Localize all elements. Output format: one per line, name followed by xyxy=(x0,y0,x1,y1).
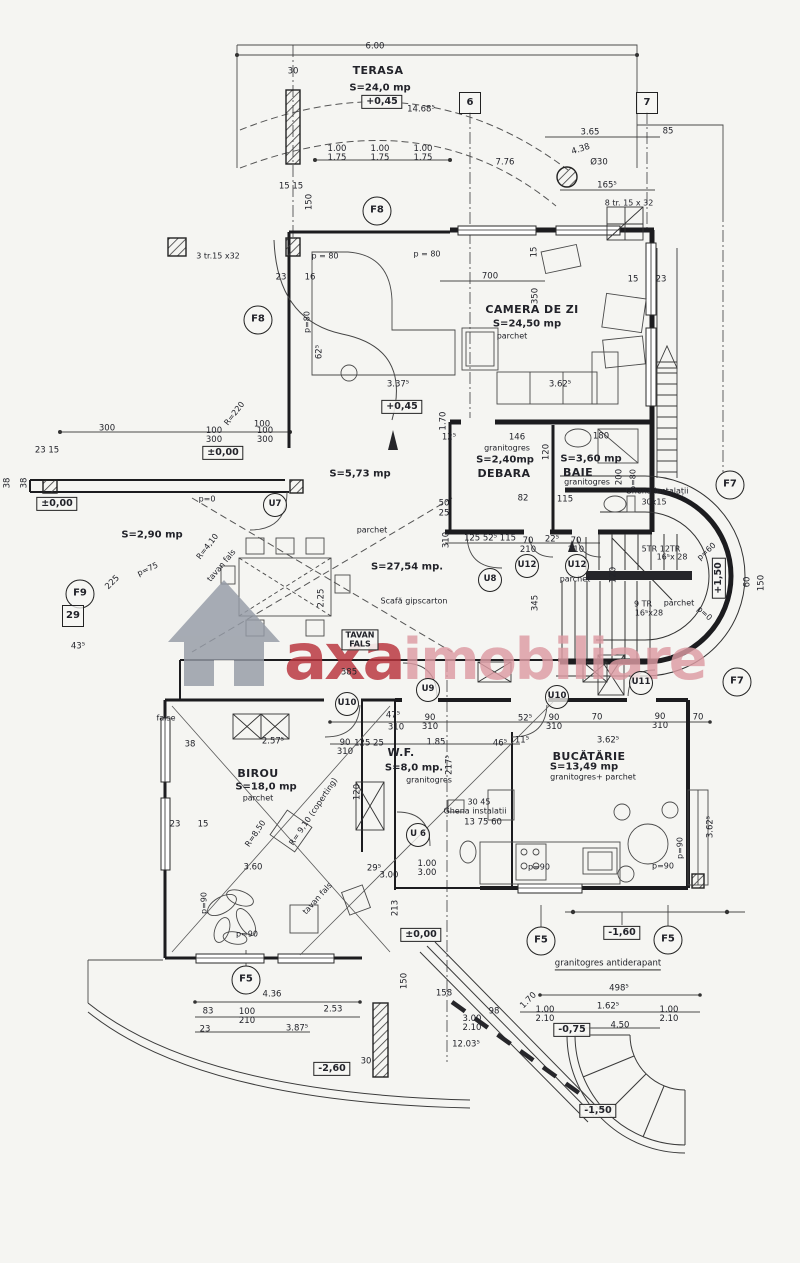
slope-label: p=80 xyxy=(304,311,313,333)
dimension-label: 23 xyxy=(656,275,667,284)
room-area-label: S=18,0 mp xyxy=(235,783,296,794)
dimension-label: 85 xyxy=(663,127,674,136)
room-area-label: S=2,90 mp xyxy=(121,531,182,542)
slope-label: p=90 xyxy=(201,892,210,914)
room-area-label: S=24,50 mp xyxy=(493,320,561,331)
dimension-label: 16 xyxy=(305,273,316,282)
slope-label: p = 80 xyxy=(311,253,338,262)
dimension-label: Ø30 xyxy=(590,158,608,167)
slope-label: p=0 xyxy=(199,496,216,505)
opening-marker: U10 xyxy=(335,692,359,716)
room-name-label: W.F. xyxy=(387,747,414,759)
room-area-label: S=2,40mp xyxy=(476,456,534,467)
dimension-label: 1.85 xyxy=(427,738,446,747)
dimension-label: 150 xyxy=(305,194,314,210)
grid-axis-tag: 6 xyxy=(459,92,481,114)
dimension-label: 2.53 xyxy=(324,1005,343,1014)
finish-label: granitogres+ parchet xyxy=(550,774,636,783)
dimension-label: 2.25 xyxy=(317,589,326,608)
opening-marker: U11 xyxy=(629,671,653,695)
dimension-label: 70 xyxy=(693,713,704,722)
dimension-label: 4.36 xyxy=(263,990,282,999)
dimension-label: 310 xyxy=(388,723,404,732)
dimension-label: 3.60 xyxy=(244,863,263,872)
dimension-label: 3.62⁵ xyxy=(549,380,571,389)
dimension-label: 15 xyxy=(628,275,639,284)
finish-label: parchet xyxy=(664,600,695,609)
dimension-label: 1.62⁵ xyxy=(597,1002,619,1011)
floor-plan-canvas: axa imobiliare TERASACAMERA DE ZIDEBARAB… xyxy=(0,0,800,1263)
finish-label: parchet xyxy=(497,333,528,342)
dimension-label: 14.68⁵ xyxy=(407,105,435,114)
dimension-label: 90 310 xyxy=(422,714,438,732)
annotation-label: 8 tr. 15 x 32 xyxy=(605,200,654,209)
finish-label: parchet xyxy=(357,527,388,536)
level-marker: ±0,00 xyxy=(202,446,243,460)
dimension-label: 90 310 xyxy=(337,739,353,757)
dimension-label: 180 xyxy=(593,432,609,441)
opening-marker: U12 xyxy=(515,554,539,578)
level-marker: +0,45 xyxy=(381,400,422,414)
dimension-label: 3.00 xyxy=(380,871,399,880)
dimension-label: 1.00 1.75 xyxy=(371,145,390,163)
slope-label: p=90 xyxy=(652,863,674,872)
dimension-label: 70 xyxy=(592,713,603,722)
radius-label: R=4,10 xyxy=(195,532,220,561)
dimension-label: 38 xyxy=(3,478,12,489)
dimension-label: 213 xyxy=(391,900,400,916)
slope-label: p=90 xyxy=(528,864,550,873)
dimension-label: 50 xyxy=(439,499,450,508)
slope-label: p=90 xyxy=(677,837,686,859)
dimension-label: 11⁵ xyxy=(515,736,529,745)
ceiling-note: TAVAN FALS xyxy=(341,629,378,650)
dimension-label: 83 xyxy=(203,1007,214,1016)
dimension-label: 350 xyxy=(531,288,540,304)
radius-label: R=8,50 xyxy=(244,819,268,849)
dimension-label: 125 52⁵ 115 xyxy=(464,534,516,543)
dimension-label: 98 xyxy=(489,1007,500,1016)
opening-marker: U 6 xyxy=(406,823,430,847)
dimension-label: 125 25 xyxy=(354,739,384,748)
room-name-label: DEBARA xyxy=(478,468,531,480)
annotation-label: Scafă gipscarton xyxy=(381,598,448,607)
dimension-label: 1.00 2.10 xyxy=(660,1006,679,1024)
dimension-label: 90 310 xyxy=(652,713,668,731)
dimension-label: 1.00 1.75 xyxy=(328,145,347,163)
dimension-label: 150 xyxy=(757,575,766,591)
dimension-label: 300 xyxy=(99,424,115,433)
dimension-label: 38 xyxy=(20,478,29,489)
dimension-label: 3.87⁵ xyxy=(286,1024,308,1033)
annotation-label: 30x15 xyxy=(641,499,666,508)
dimension-label: 2.57⁵ xyxy=(262,737,284,746)
dimension-label: 47⁵ xyxy=(386,711,400,720)
dimension-label: 200 xyxy=(615,469,624,485)
grid-axis-tag: 7 xyxy=(636,92,658,114)
annotation-label: 3 tr.15 x32 xyxy=(196,253,240,262)
annotation-label: tavan fals xyxy=(302,881,335,916)
dimension-label: 30 xyxy=(361,1057,372,1066)
dimension-label: 6.00 xyxy=(366,42,385,51)
dimension-label: 12.03⁵ xyxy=(452,1040,480,1049)
room-name-label: TERASA xyxy=(353,65,404,77)
slope-label: p=0 xyxy=(695,605,713,623)
axis-marker: F8 xyxy=(244,306,273,335)
dimension-label: 15 15 xyxy=(279,182,303,191)
annotation-label: 16⁵x28 xyxy=(635,610,663,619)
dimension-label: 82 xyxy=(518,494,529,503)
level-marker: -2,60 xyxy=(313,1062,350,1076)
dimension-label: 43⁵ xyxy=(71,642,85,651)
opening-marker: U10 xyxy=(545,685,569,709)
dimension-label: 120 xyxy=(609,567,618,583)
opening-marker: U12 xyxy=(565,554,589,578)
annotation-label: 30 45 xyxy=(468,799,491,808)
annotation-label: 16⁵x 28 xyxy=(657,554,688,563)
axis-marker: F7 xyxy=(716,471,745,500)
room-area-label: S=24,0 mp xyxy=(349,84,410,95)
dimension-label: 4.38 xyxy=(571,143,592,158)
dimension-label: 158 xyxy=(436,989,452,998)
dimension-label: 3.65 xyxy=(581,128,600,137)
dimension-label: 60 xyxy=(743,577,752,588)
dimension-label: 15 xyxy=(530,247,539,258)
annotation-label: false xyxy=(156,715,175,724)
dimension-label: 385 xyxy=(341,668,357,677)
room-area-label: S=8,0 mp. xyxy=(385,764,443,775)
level-marker: -1,50 xyxy=(579,1104,616,1118)
dimension-label: 120 xyxy=(542,444,551,460)
finish-label: parchet xyxy=(243,795,274,804)
axis-marker: F7 xyxy=(723,668,752,697)
dimension-label: 70 210 xyxy=(520,537,536,555)
slope-label: p=90 xyxy=(236,931,258,940)
room-area-label: S=5,73 mp xyxy=(329,470,390,481)
opening-marker: U8 xyxy=(478,568,502,592)
level-marker: -0,75 xyxy=(553,1023,590,1037)
level-marker: +0,45 xyxy=(361,95,402,109)
dimension-label: 23 xyxy=(276,273,287,282)
opening-marker: U7 xyxy=(263,493,287,517)
dimension-label: 100 210 xyxy=(239,1008,255,1026)
dimension-label: 100 300 xyxy=(206,427,222,445)
dimension-label: 46⁵ xyxy=(493,739,507,748)
slope-label: p=75 xyxy=(136,561,160,578)
level-marker: ±0,00 xyxy=(36,497,77,511)
dimension-label: 3.62⁵ xyxy=(706,816,715,838)
grid-axis-tag: 29 xyxy=(62,605,84,627)
slope-label: p=80 xyxy=(630,469,639,491)
room-name-label: CAMERA DE ZI xyxy=(485,304,578,316)
dimension-label: 1.70 xyxy=(439,412,448,431)
opening-marker: U9 xyxy=(416,678,440,702)
dimension-label: 62⁵ xyxy=(315,345,324,359)
dimension-label: 225 xyxy=(104,574,122,592)
dimension-label: 3.00 2.10 xyxy=(463,1015,482,1033)
room-name-label: BIROU xyxy=(237,768,278,780)
dimension-label: 1.00 3.00 xyxy=(418,860,437,878)
annotation-label: tavan fals xyxy=(206,548,238,584)
dimension-label: 23 xyxy=(170,820,181,829)
level-marker: ±0,00 xyxy=(400,928,441,942)
dimension-label: 1.00 1.75 xyxy=(414,145,433,163)
dimension-label: 38 xyxy=(185,740,196,749)
dimension-label: 25 xyxy=(439,509,450,518)
dimension-label: 1.00 2.10 xyxy=(536,1006,555,1024)
dimension-label: 90 310 xyxy=(546,714,562,732)
dimension-label: 146 xyxy=(509,433,525,442)
dimension-label: 115 xyxy=(557,495,573,504)
dimension-label: 120 xyxy=(353,784,362,800)
level-marker: -1,60 xyxy=(603,926,640,940)
dimension-label: 150 xyxy=(400,973,409,989)
dimension-label: 3.62⁵ xyxy=(597,736,619,745)
dimension-label: 345 xyxy=(531,595,540,611)
axis-marker: F8 xyxy=(363,197,392,226)
dimension-label: 310 xyxy=(442,532,451,548)
finish-label: granitogres xyxy=(564,479,610,488)
radius-label: R=220 xyxy=(223,400,247,427)
dimension-label: 15 xyxy=(198,820,209,829)
room-area-label: S=3,60 mp xyxy=(560,455,621,466)
annotation-label: Ghena instalatii xyxy=(444,808,507,817)
dimension-label: 70 210 xyxy=(568,537,584,555)
dimension-label: 3.37⁵ xyxy=(387,380,409,389)
axis-marker: F5 xyxy=(654,926,683,955)
dimension-label: 13 75 60 xyxy=(464,818,502,827)
finish-label: granitogres xyxy=(406,777,452,786)
finish-note: granitogres antiderapant xyxy=(555,959,661,970)
dimension-label: 30 xyxy=(288,67,299,76)
dimension-label: 217⁵ xyxy=(445,755,454,775)
dimension-label: 22⁵ xyxy=(545,535,559,544)
axis-marker: F5 xyxy=(527,927,556,956)
dimension-label: 165⁵ xyxy=(597,181,617,190)
axis-marker: F5 xyxy=(232,966,261,995)
slope-label: p = 80 xyxy=(413,251,440,260)
dimension-label: 29⁵ xyxy=(367,864,381,873)
finish-label: granitogres xyxy=(484,445,530,454)
dimension-label: 100 300 xyxy=(257,427,273,445)
dimension-label: 23 xyxy=(200,1025,211,1034)
dimension-label: 52⁵ xyxy=(518,714,532,723)
label-layer: TERASACAMERA DE ZIDEBARABAIEBIROUW.F.BUC… xyxy=(0,0,800,1263)
dimension-label: 12⁵ xyxy=(442,433,456,442)
dimension-label: 23 15 xyxy=(35,446,59,455)
dimension-label: 498⁵ xyxy=(609,984,629,993)
dimension-label: 700 xyxy=(482,272,498,281)
room-area-label: S=27,54 mp. xyxy=(371,563,443,574)
dimension-label: 4.50 xyxy=(611,1021,630,1030)
dimension-label: 7.76 xyxy=(496,158,515,167)
level-marker: +1,50 xyxy=(712,557,726,598)
